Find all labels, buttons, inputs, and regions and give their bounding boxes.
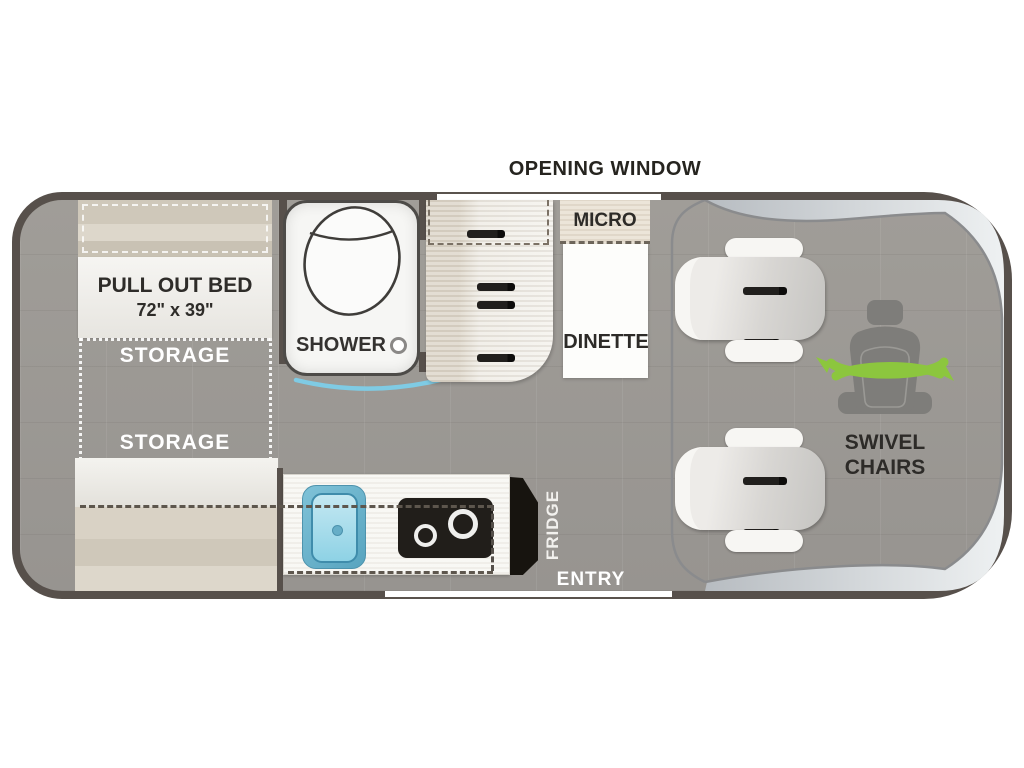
kitchen-counter bbox=[283, 474, 510, 575]
sink-drain-icon bbox=[332, 525, 343, 536]
drawer-handle bbox=[477, 301, 515, 309]
galley-dashed-right bbox=[491, 505, 494, 571]
fridge bbox=[510, 477, 538, 575]
kitchen-sink bbox=[302, 485, 366, 569]
chair-seat bbox=[675, 447, 825, 530]
micro-cabinet: MICRO bbox=[560, 200, 650, 244]
burner-icon bbox=[448, 509, 478, 539]
fridge-label: FRIDGE bbox=[543, 480, 561, 570]
seat-rail-icon bbox=[743, 477, 787, 485]
dinette-label: DINETTE bbox=[551, 331, 661, 354]
bed-rear-cushion bbox=[78, 200, 272, 257]
storage-outline-top bbox=[80, 338, 270, 341]
window-opening bbox=[437, 192, 661, 200]
drawer-handle bbox=[477, 354, 515, 362]
galley-dashed-top bbox=[80, 505, 493, 508]
entry-opening bbox=[385, 591, 672, 599]
burner-icon bbox=[414, 524, 437, 547]
van-outline: SWIVEL CHAIRS PULL OUT BED 72" x 39" STO… bbox=[12, 192, 1012, 599]
drawer-handle bbox=[467, 230, 505, 238]
seat-rail-icon bbox=[743, 287, 787, 295]
floorplan-page: OPENING WINDOW bbox=[0, 0, 1024, 768]
chair-seat bbox=[675, 257, 825, 340]
storage-label-lower: STORAGE bbox=[78, 431, 272, 455]
bench-seat-cushion bbox=[75, 458, 278, 507]
sink-basin bbox=[311, 493, 358, 563]
pull-out-bed: PULL OUT BED 72" x 39" bbox=[78, 257, 272, 338]
opening-window-label: OPENING WINDOW bbox=[430, 158, 780, 181]
dinette-table: DINETTE bbox=[563, 244, 648, 378]
swivel-chair-passenger bbox=[675, 428, 827, 552]
storage-label-upper: STORAGE bbox=[78, 344, 272, 368]
galley-dashed-bottom bbox=[288, 571, 493, 574]
bench-seat-base bbox=[75, 507, 278, 591]
swivel-chair-driver bbox=[675, 238, 827, 362]
drawer-handle bbox=[477, 283, 515, 291]
chair-armrest bbox=[725, 530, 803, 552]
wardrobe-cabinet bbox=[426, 200, 553, 382]
overhead-cabinet-outline bbox=[428, 200, 549, 245]
seat-swivel-icon bbox=[838, 300, 932, 414]
entry-label: ENTRY bbox=[541, 569, 641, 591]
chair-armrest bbox=[725, 340, 803, 362]
micro-label: MICRO bbox=[573, 210, 636, 232]
bath-wall-right-top bbox=[419, 200, 426, 240]
